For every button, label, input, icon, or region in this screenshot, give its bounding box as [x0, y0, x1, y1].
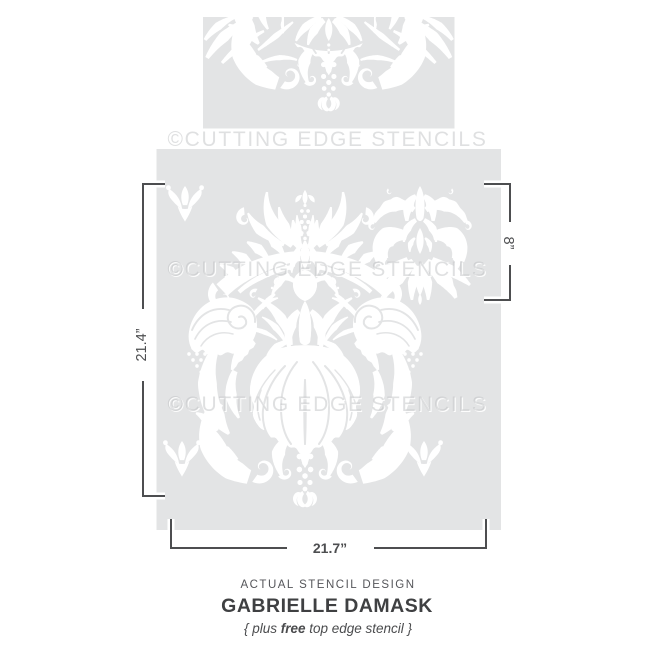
svg-text:21.7”: 21.7” — [313, 540, 347, 556]
svg-text:ACTUAL STENCIL DESIGN: ACTUAL STENCIL DESIGN — [240, 579, 415, 591]
svg-text:21.4”: 21.4” — [134, 328, 150, 361]
svg-text:GABRIELLE DAMASK: GABRIELLE DAMASK — [221, 595, 433, 617]
svg-text:©CUTTING EDGE STENCILS: ©CUTTING EDGE STENCILS — [167, 128, 487, 151]
svg-text:©CUTTING EDGE STENCILS: ©CUTTING EDGE STENCILS — [167, 393, 487, 416]
svg-text:©CUTTING EDGE STENCILS: ©CUTTING EDGE STENCILS — [167, 258, 487, 281]
svg-text:{ plus free top edge stencil }: { plus free top edge stencil } — [244, 621, 413, 636]
svg-text:8”: 8” — [500, 237, 516, 250]
